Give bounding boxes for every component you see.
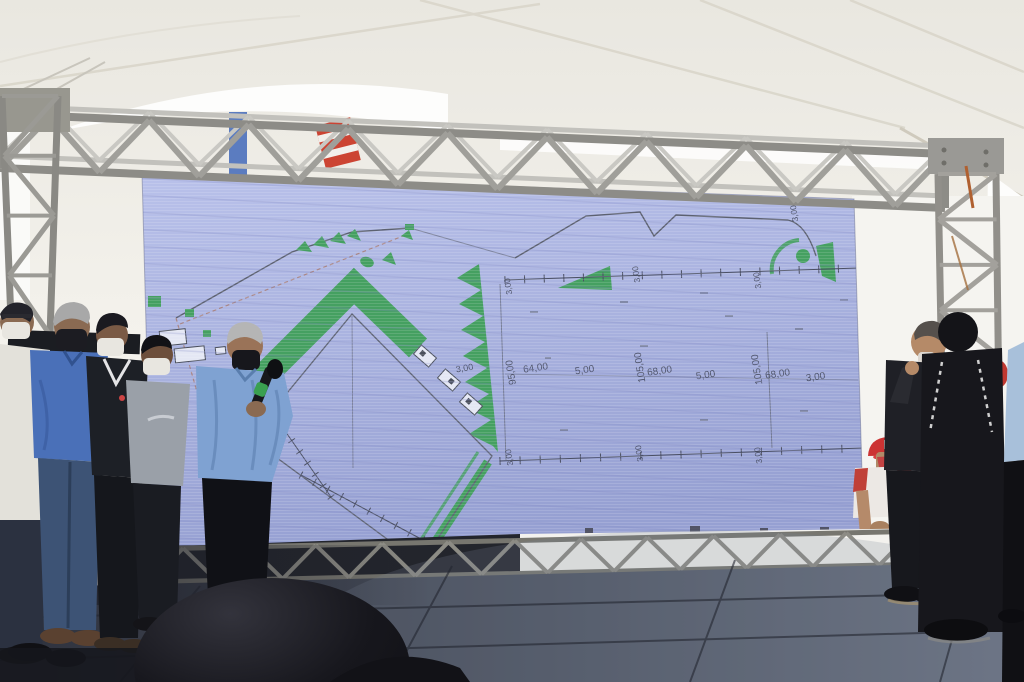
white-mask [97, 338, 124, 356]
black-polo-shirt [918, 348, 1008, 632]
white-mask [143, 358, 170, 375]
event-photo: Outdoor press event under a white tent: … [0, 0, 1024, 682]
white-mask [2, 322, 30, 339]
glasses [2, 314, 32, 318]
black-mask [56, 329, 87, 350]
raised-hand [905, 361, 919, 375]
man-black-polo [918, 312, 1008, 642]
gray-tshirt [126, 380, 190, 486]
black-mask [232, 350, 260, 370]
hand [246, 401, 266, 417]
